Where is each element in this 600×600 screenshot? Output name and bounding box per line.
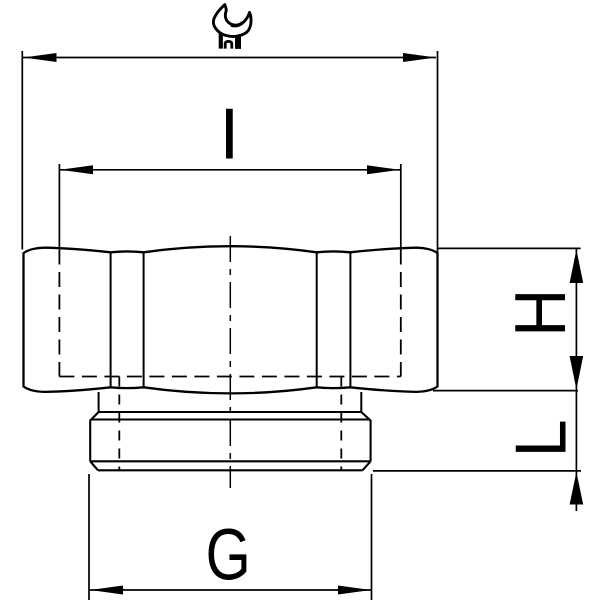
svg-text:L: L (500, 419, 581, 457)
svg-text:G: G (206, 515, 251, 595)
svg-text:H: H (500, 289, 581, 337)
svg-text:I: I (219, 95, 239, 175)
